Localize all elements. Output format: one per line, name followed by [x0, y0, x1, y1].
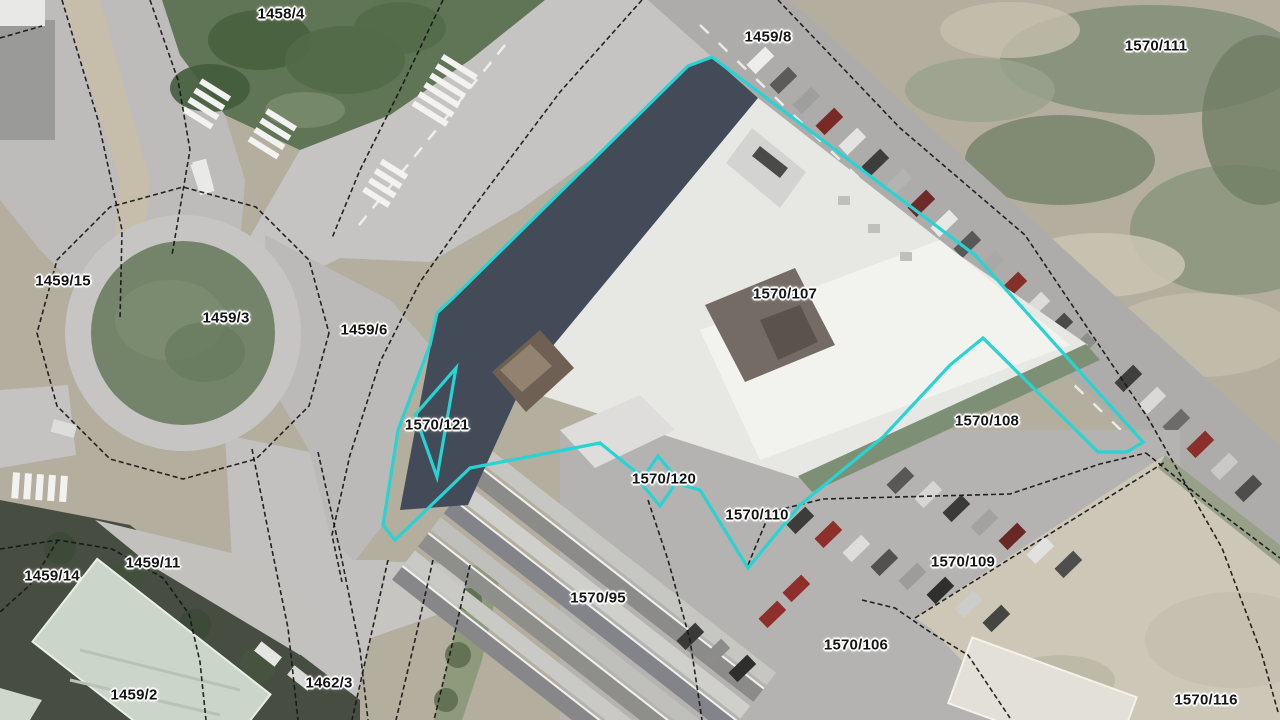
orthophoto-layer	[0, 0, 1280, 720]
map-viewport[interactable]: 1458/41459/81570/1111459/151459/31459/61…	[0, 0, 1280, 720]
